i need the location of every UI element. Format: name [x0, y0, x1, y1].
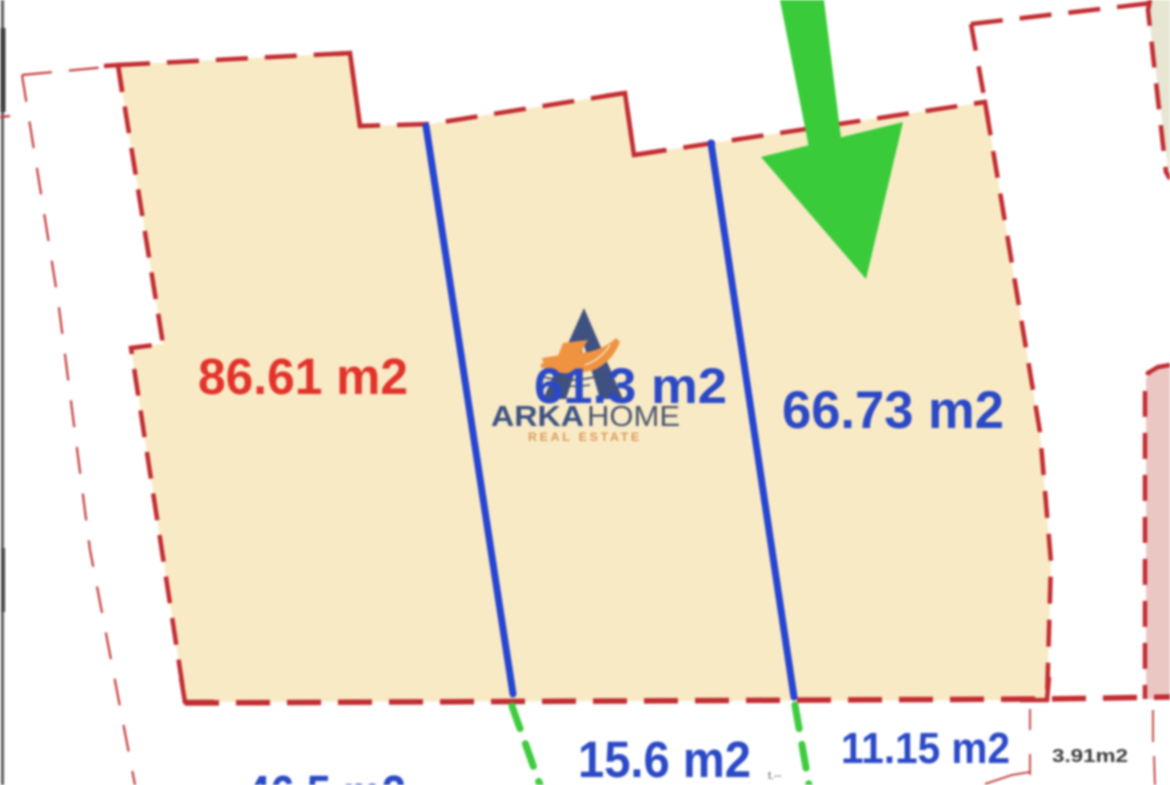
svg-text:15.6 m2: 15.6 m2: [578, 731, 751, 785]
svg-text:t.--: t.--: [768, 770, 782, 782]
svg-text:46.5 m2: 46.5 m2: [246, 765, 406, 785]
svg-text:86.61 m2: 86.61 m2: [198, 348, 408, 405]
svg-text:11.15 m2: 11.15 m2: [841, 724, 1010, 773]
svg-text:66.73 m2: 66.73 m2: [782, 381, 1004, 440]
svg-text:61.3 m2: 61.3 m2: [534, 358, 727, 414]
svg-text:REAL ESTATE: REAL ESTATE: [528, 430, 642, 444]
svg-text:3.91m2: 3.91m2: [1052, 746, 1128, 766]
